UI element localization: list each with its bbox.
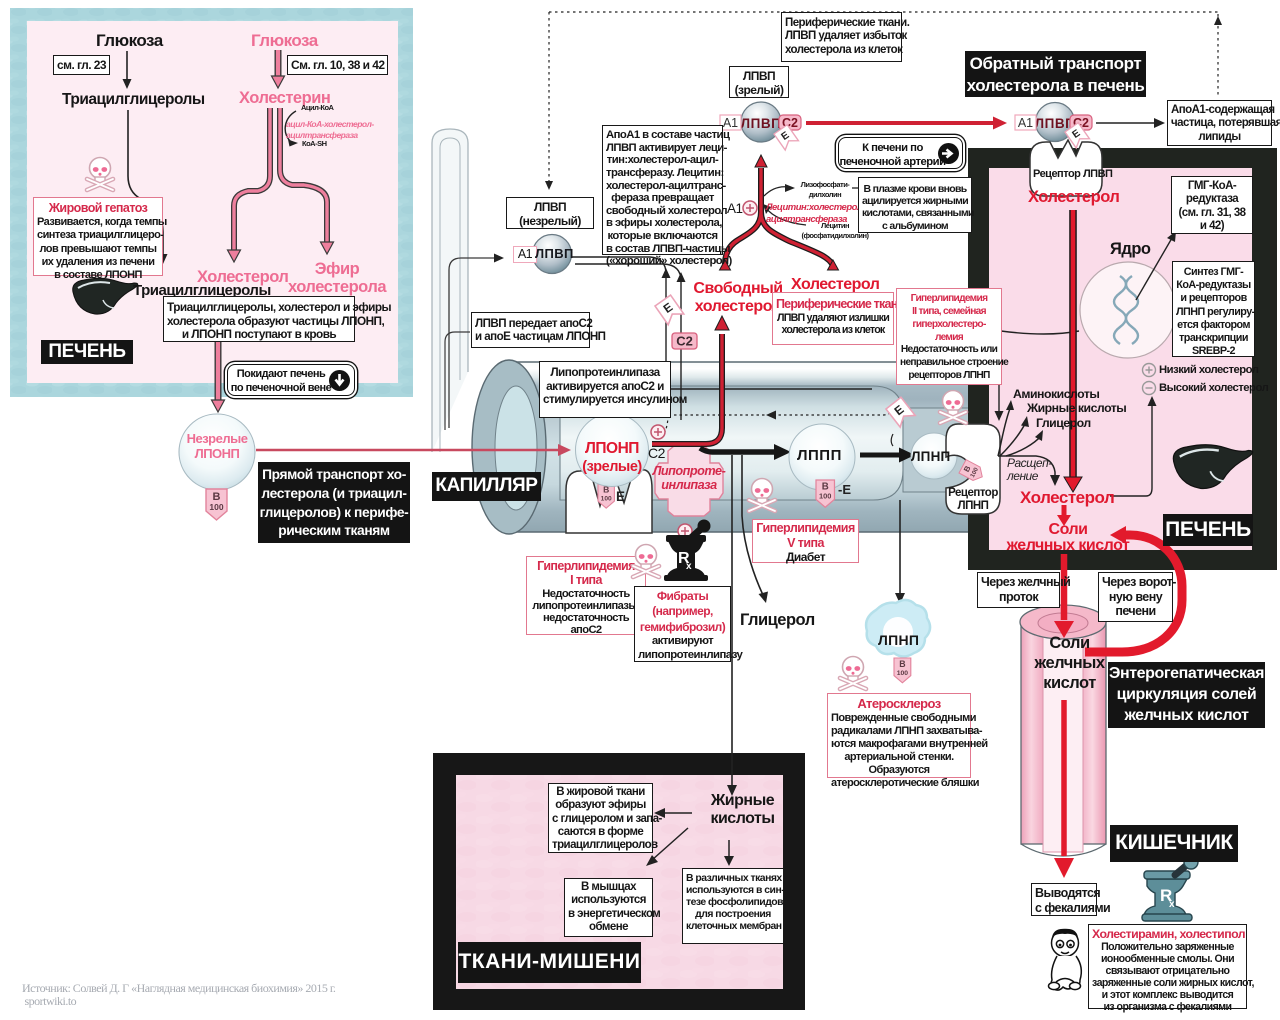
svg-text:А1: А1 (1018, 116, 1033, 130)
svg-text:А1: А1 (723, 116, 738, 130)
svg-text:x: x (686, 561, 692, 572)
svg-text:Е: Е (616, 489, 625, 504)
svg-text:ЛПВП: ЛПВП (741, 116, 782, 131)
svg-text:С2: С2 (676, 334, 693, 349)
svg-text:x: x (1169, 899, 1175, 910)
svg-text:-Е: -Е (838, 482, 851, 497)
